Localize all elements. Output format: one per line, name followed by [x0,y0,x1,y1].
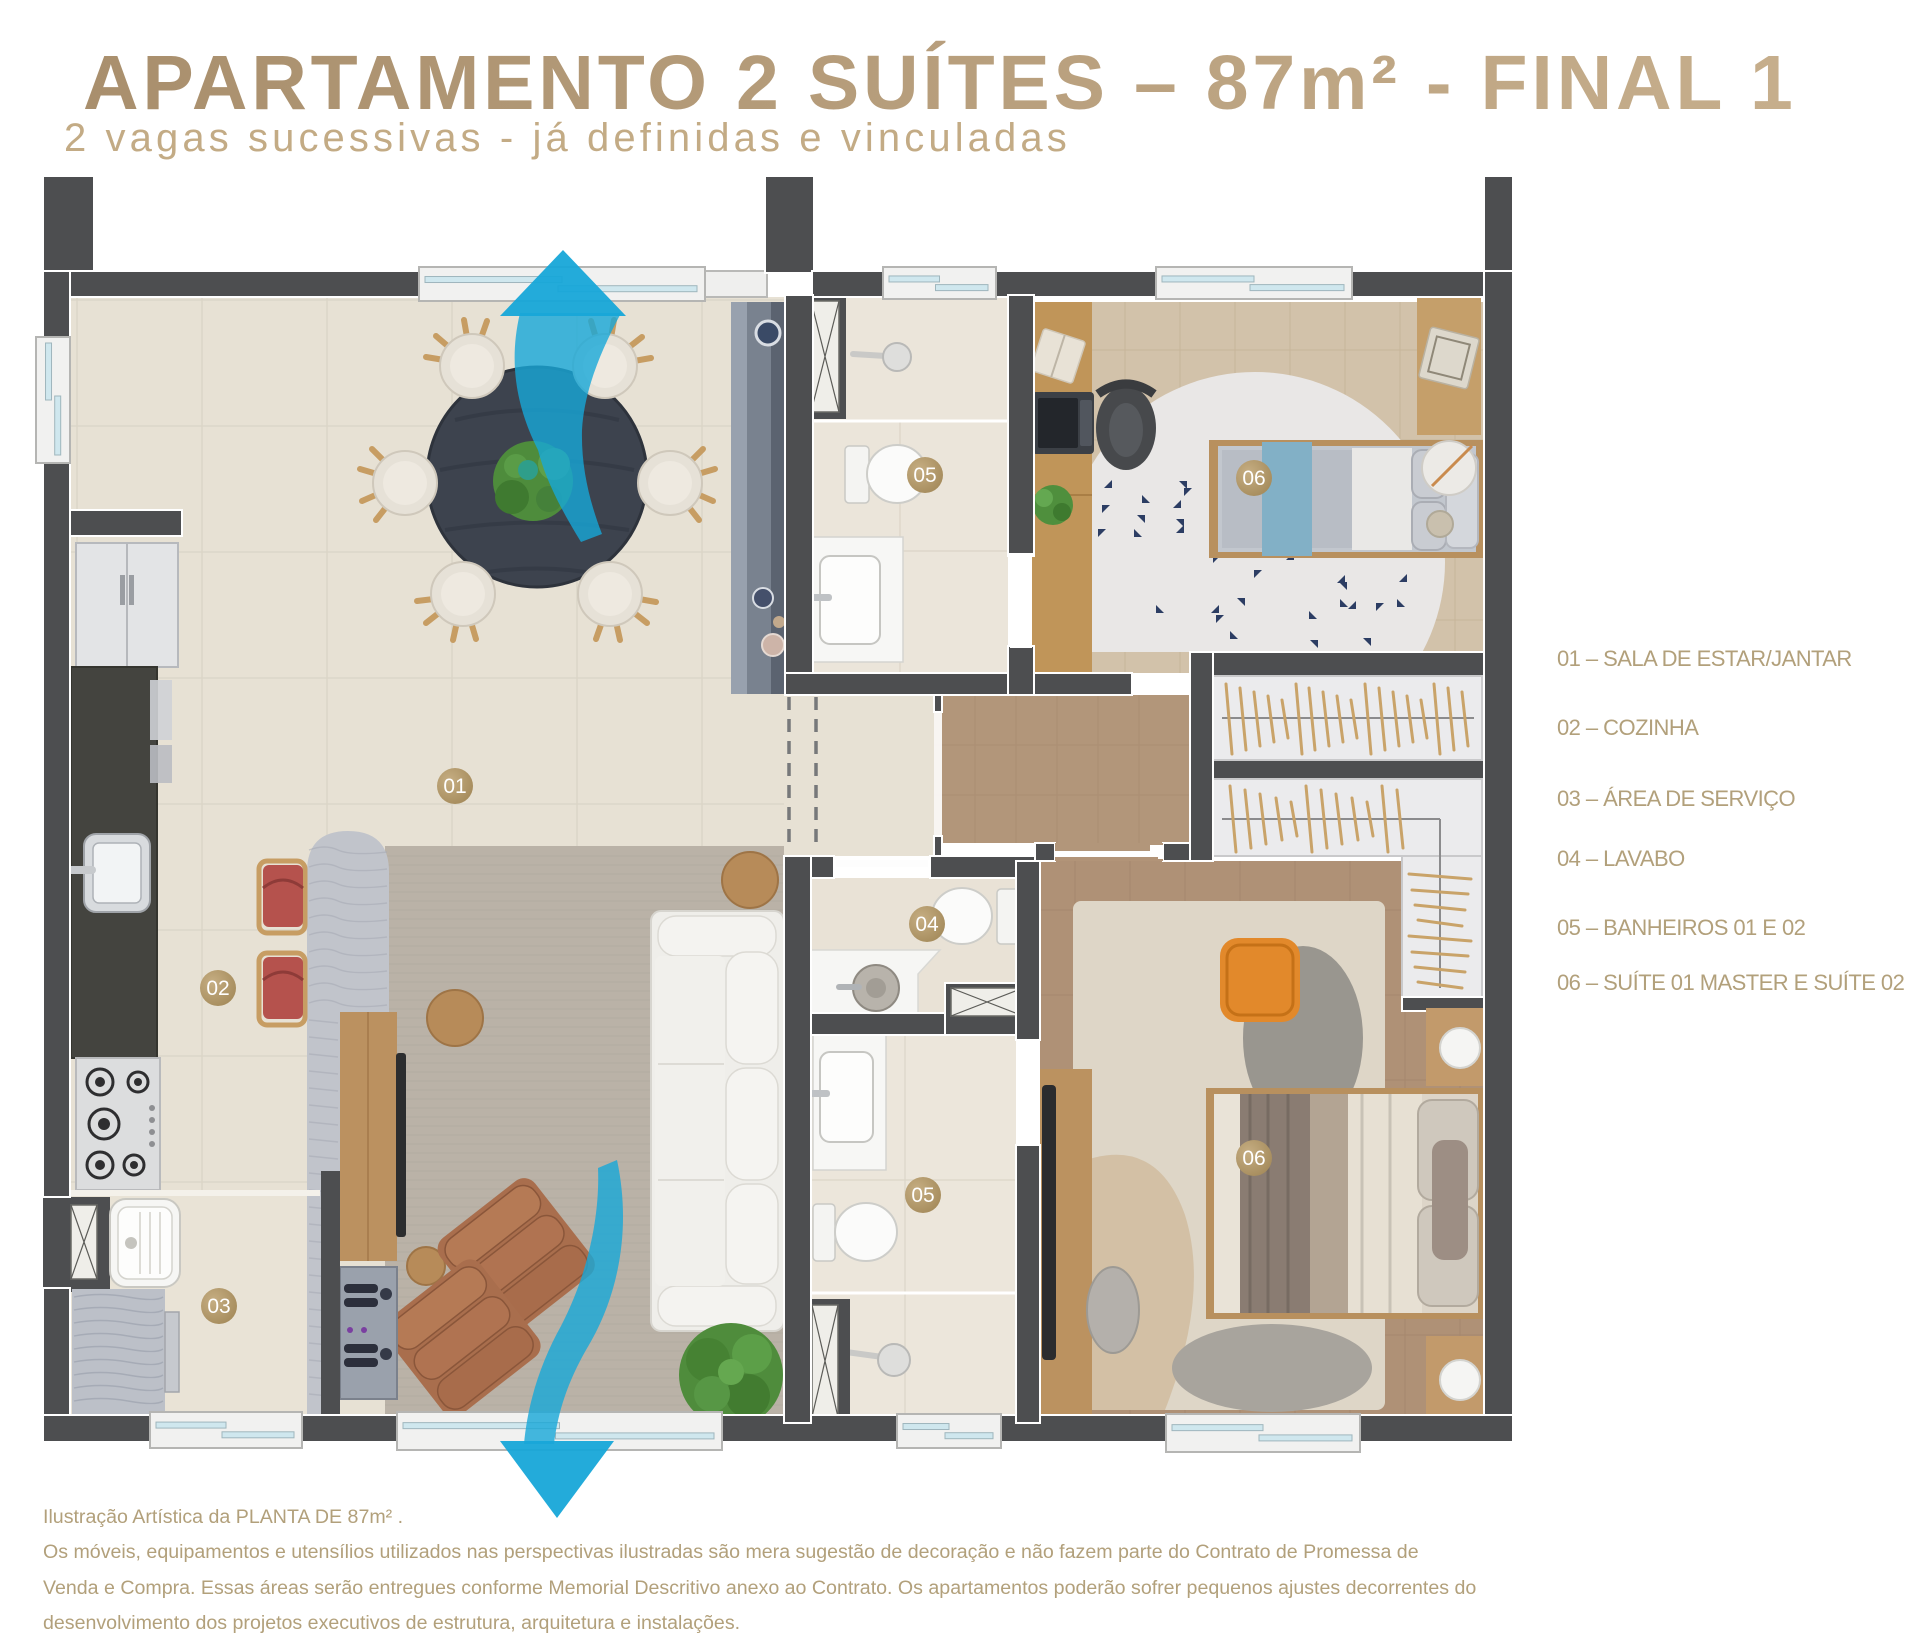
svg-text:04: 04 [915,913,939,936]
svg-text:05: 05 [911,1184,934,1207]
svg-text:06: 06 [1242,1147,1265,1170]
svg-text:01: 01 [443,775,466,798]
svg-text:05: 05 [913,464,936,487]
svg-text:03: 03 [207,1295,230,1318]
svg-text:02: 02 [206,977,229,1000]
svg-text:06: 06 [1242,467,1265,490]
